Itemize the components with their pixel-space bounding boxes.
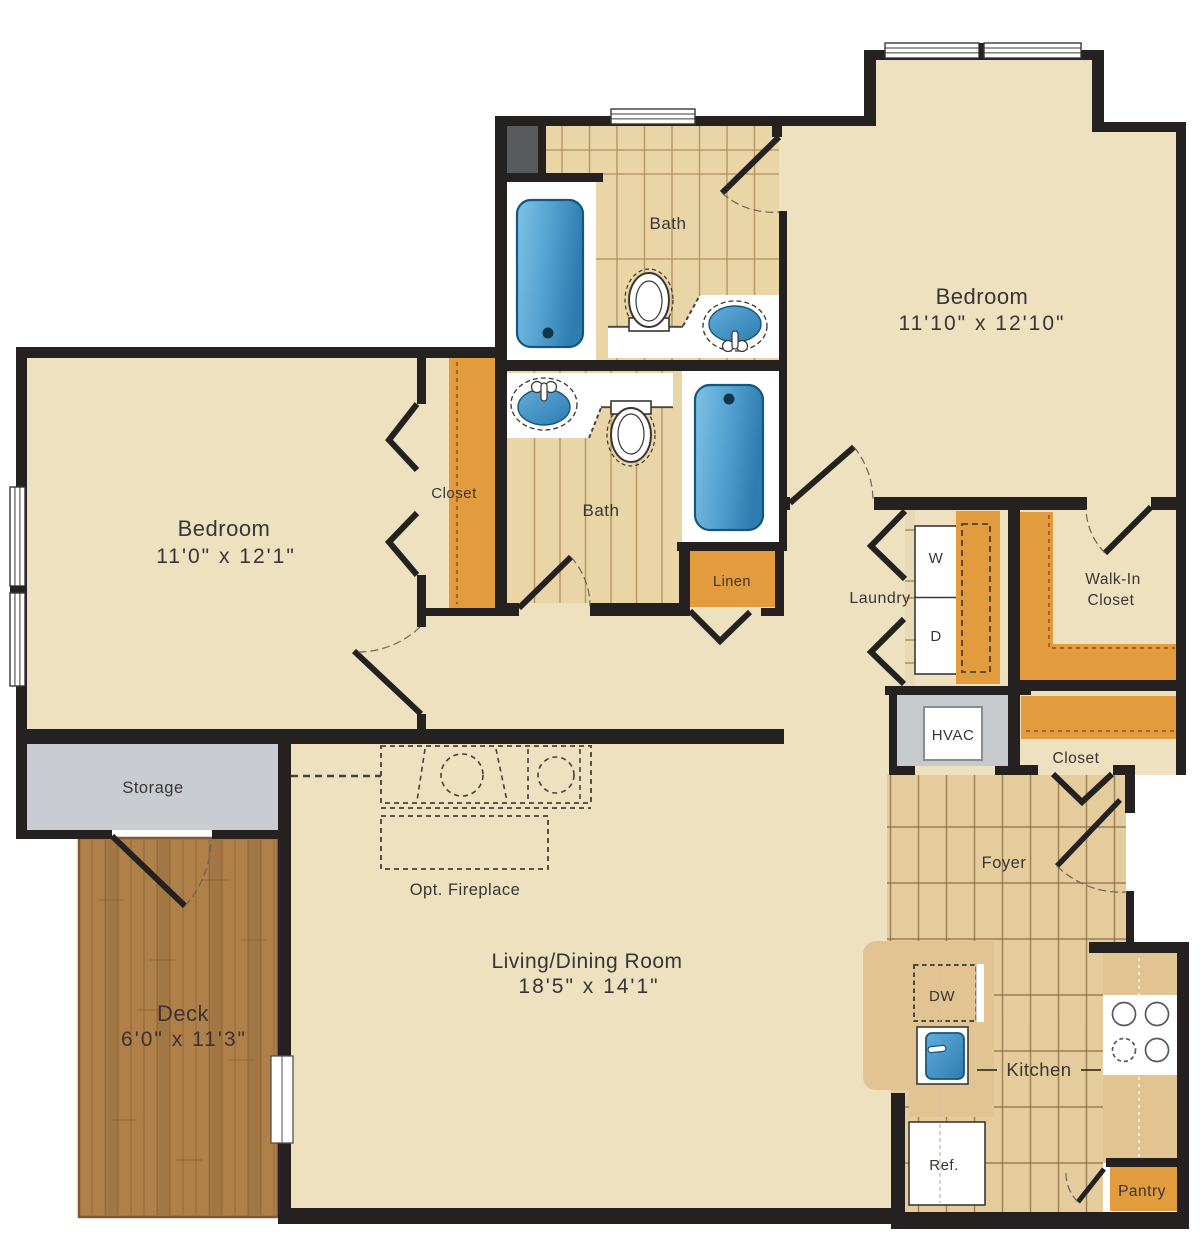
svg-text:Foyer: Foyer <box>982 854 1027 872</box>
svg-text:Bedroom: Bedroom <box>178 516 271 541</box>
svg-text:Bedroom: Bedroom <box>936 284 1029 309</box>
svg-text:Deck: Deck <box>157 1001 210 1026</box>
svg-text:11'10" x 12'10": 11'10" x 12'10" <box>899 312 1066 335</box>
svg-text:Pantry: Pantry <box>1118 1183 1166 1200</box>
svg-text:Walk-In: Walk-In <box>1085 571 1140 588</box>
svg-text:Closet: Closet <box>431 485 477 502</box>
svg-text:D: D <box>930 628 941 645</box>
svg-text:Closet: Closet <box>1088 592 1135 609</box>
svg-text:HVAC: HVAC <box>932 727 975 744</box>
svg-text:Bath: Bath <box>650 214 687 233</box>
svg-text:W: W <box>929 550 944 567</box>
svg-text:Closet: Closet <box>1053 750 1100 767</box>
svg-text:Ref.: Ref. <box>929 1157 959 1174</box>
svg-text:11'0" x 12'1": 11'0" x 12'1" <box>156 545 296 568</box>
svg-text:Laundry: Laundry <box>849 590 910 607</box>
svg-text:Linen: Linen <box>713 574 751 590</box>
svg-text:DW: DW <box>929 988 955 1005</box>
svg-text:Opt. Fireplace: Opt. Fireplace <box>410 881 521 899</box>
svg-text:Living/Dining Room: Living/Dining Room <box>491 950 682 973</box>
svg-text:18'5" x 14'1": 18'5" x 14'1" <box>518 975 659 998</box>
svg-text:Bath: Bath <box>583 501 620 520</box>
svg-text:Storage: Storage <box>122 779 183 797</box>
svg-text:6'0" x 11'3": 6'0" x 11'3" <box>121 1028 247 1051</box>
svg-text:Kitchen: Kitchen <box>1006 1059 1071 1080</box>
